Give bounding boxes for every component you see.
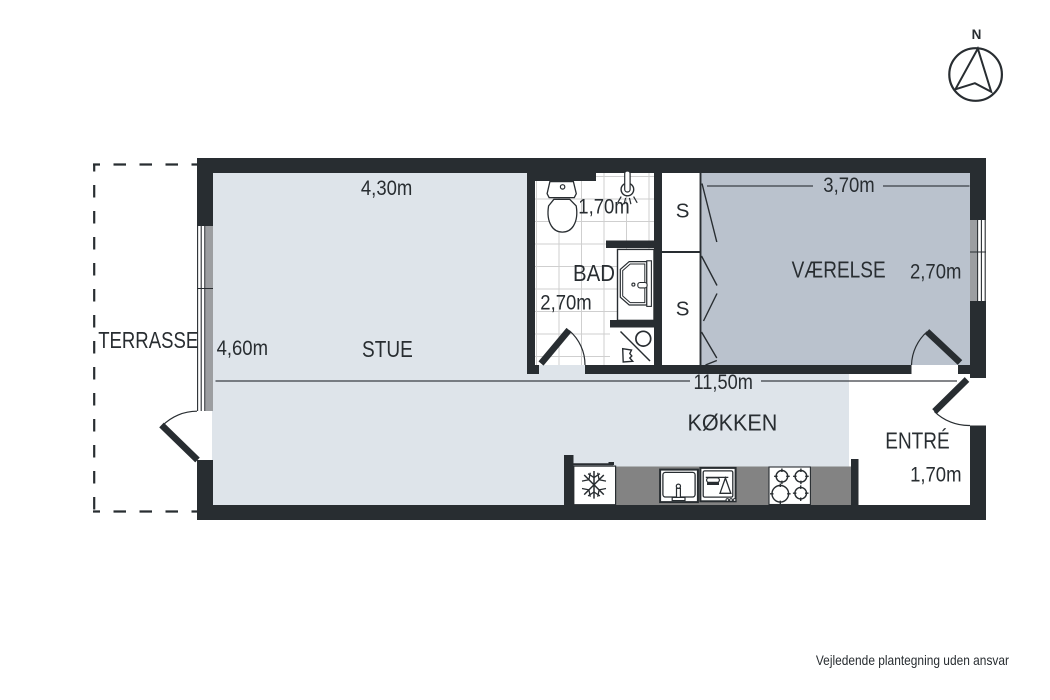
svg-text:Vejledende plantegning uden an: Vejledende plantegning uden ansvar	[816, 652, 1010, 668]
svg-text:KØKKEN: KØKKEN	[687, 410, 777, 436]
svg-text:VÆRELSE: VÆRELSE	[792, 258, 886, 283]
svg-text:4,30m: 4,30m	[361, 177, 412, 200]
svg-text:STUE: STUE	[362, 337, 413, 362]
svg-text:BAD: BAD	[573, 260, 615, 287]
svg-text:11,50m: 11,50m	[694, 371, 753, 394]
svg-text:3,70m: 3,70m	[823, 174, 874, 197]
svg-text:ENTRÉ: ENTRÉ	[885, 427, 949, 454]
svg-text:S: S	[676, 298, 690, 321]
svg-text:1,70m: 1,70m	[578, 196, 629, 219]
svg-text:N: N	[972, 27, 982, 42]
svg-text:2,70m: 2,70m	[540, 291, 591, 314]
svg-text:2,70m: 2,70m	[910, 261, 961, 284]
svg-text:TERRASSE: TERRASSE	[98, 328, 198, 353]
svg-text:1,70m: 1,70m	[910, 464, 961, 487]
svg-text:S: S	[676, 199, 690, 222]
svg-text:4,60m: 4,60m	[217, 337, 268, 360]
